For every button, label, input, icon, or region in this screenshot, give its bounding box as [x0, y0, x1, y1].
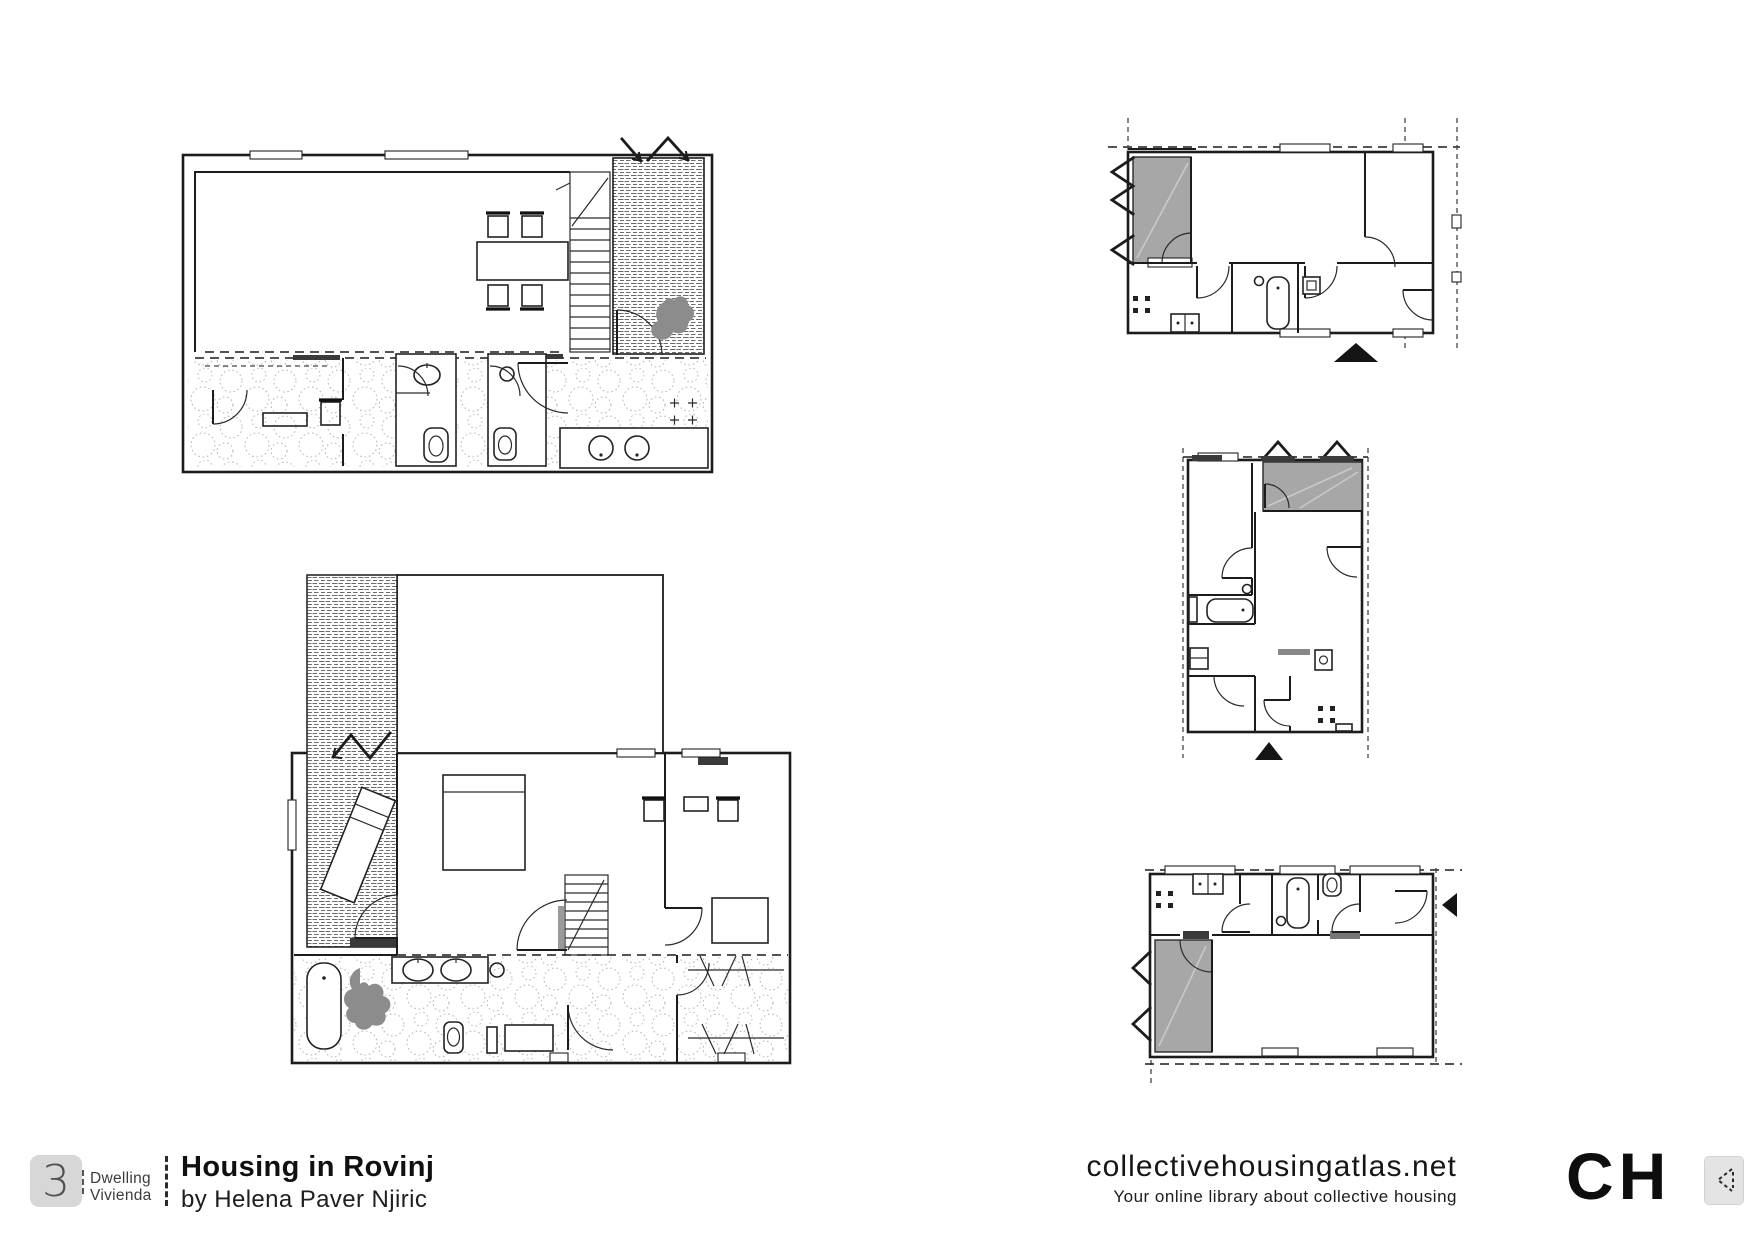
count-label-es: Vivienda: [90, 1187, 152, 1204]
floor-plans-canvas: [0, 0, 1754, 1240]
dwelling-count-labels: Dwelling Vivienda: [90, 1170, 152, 1204]
louver-sawtooth-icon: [1133, 952, 1150, 1040]
entry-direction-triangle-icon: [1255, 742, 1283, 760]
bathtub: [1267, 277, 1289, 329]
dashed-left-chevron-icon: [1705, 1157, 1743, 1204]
dwelling-count-badge: 3: [30, 1155, 82, 1207]
bathroom-2: [488, 354, 546, 466]
project-title-block: Housing in Rovinj by Helena Paver Njiric: [181, 1151, 434, 1214]
plan-house-ground-level: [288, 575, 790, 1063]
drawing-sheet: { "page": {"width": 1754, "height": 1240…: [0, 0, 1754, 1240]
brand-tagline: Your online library about collective hou…: [1057, 1187, 1457, 1207]
entry-direction-triangle-icon: [1442, 893, 1457, 917]
bathroom-1: [396, 354, 456, 466]
brand-block: collectivehousingatlas.net Your online l…: [1057, 1150, 1457, 1207]
mini-dashed-divider: [82, 1170, 84, 1194]
plan-unit-bottom: [1133, 866, 1462, 1085]
bathtub: [1287, 878, 1309, 928]
entry-direction-triangle-icon: [1334, 343, 1378, 362]
count-label-en: Dwelling: [90, 1170, 152, 1187]
bathtub: [1207, 599, 1253, 622]
plan-house-upper-level: [183, 138, 712, 472]
brand-site-name: collectivehousingatlas.net: [1057, 1150, 1457, 1184]
title-dashed-divider: [165, 1156, 168, 1206]
plan-unit-top: [1108, 118, 1461, 362]
brand-logo: CH: [1566, 1138, 1671, 1214]
plan-unit-middle: [1183, 442, 1368, 760]
dwelling-count: 3: [42, 1156, 70, 1207]
project-title: Housing in Rovinj: [181, 1151, 434, 1184]
project-byline: by Helena Paver Njiric: [181, 1186, 434, 1214]
brand-arrow-box: [1704, 1156, 1744, 1205]
